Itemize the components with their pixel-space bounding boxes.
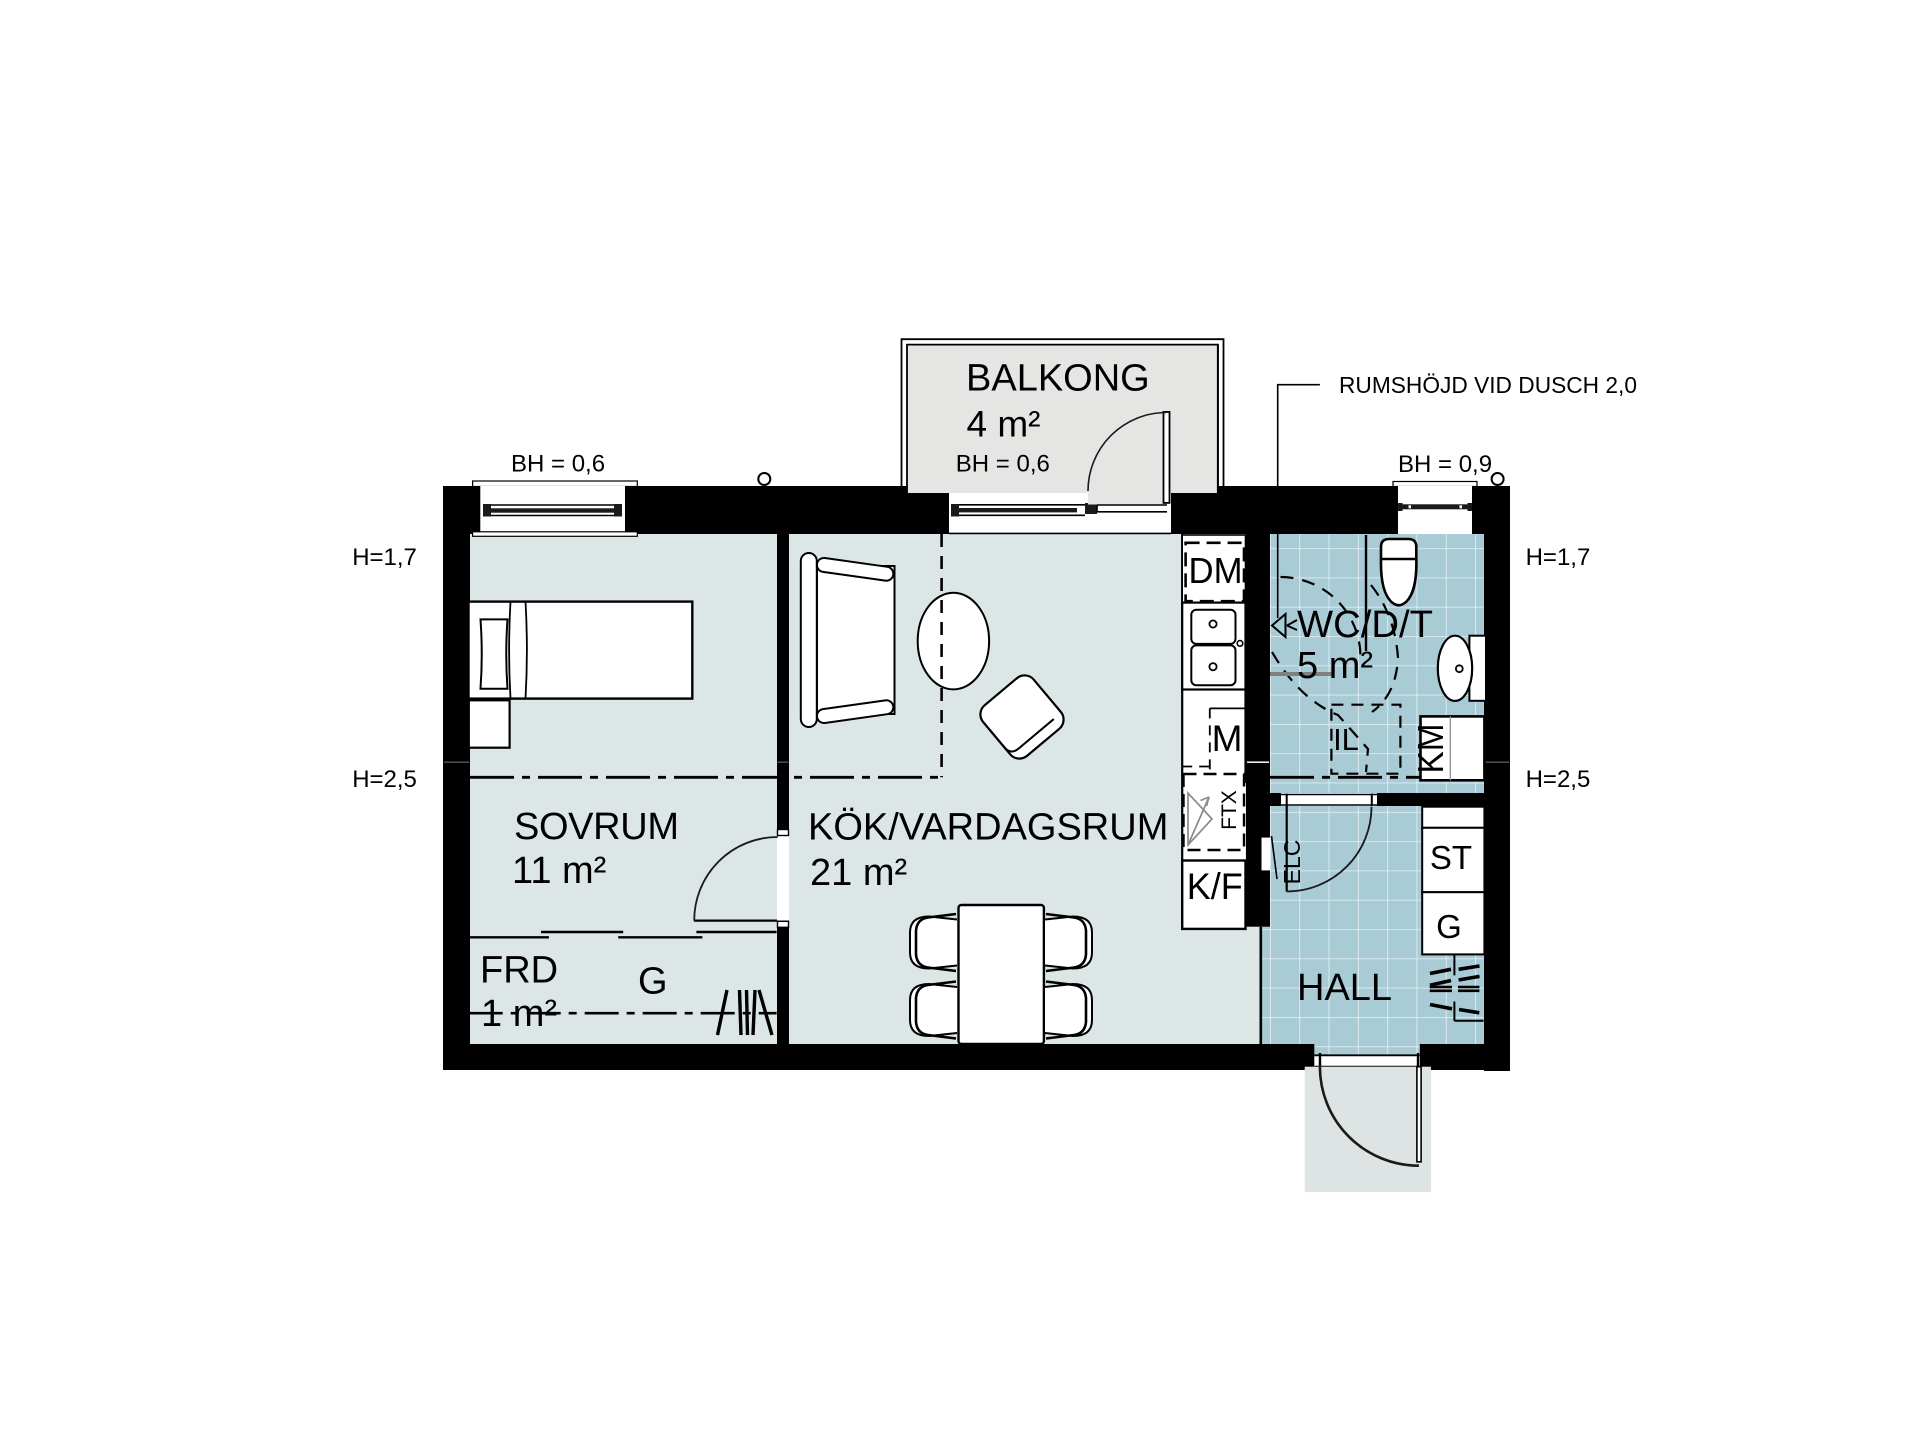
svg-text:5 m²: 5 m² — [1297, 645, 1373, 687]
svg-text:RUMSHÖJD VID DUSCH 2,0: RUMSHÖJD VID DUSCH 2,0 — [1339, 372, 1637, 398]
svg-text:H=1,7: H=1,7 — [1526, 544, 1591, 571]
svg-text:11 m²: 11 m² — [512, 850, 606, 892]
svg-text:FRD: FRD — [480, 950, 558, 992]
svg-text:1 m²: 1 m² — [481, 993, 557, 1035]
svg-text:BALKONG: BALKONG — [966, 358, 1150, 400]
svg-text:BH = 0,6: BH = 0,6 — [511, 451, 605, 478]
svg-text:H=1,7: H=1,7 — [352, 544, 417, 571]
svg-text:K/F: K/F — [1187, 866, 1243, 907]
svg-text:BH = 0,6: BH = 0,6 — [956, 451, 1050, 478]
svg-text:4 m²: 4 m² — [967, 403, 1041, 444]
svg-text:ELC: ELC — [1279, 840, 1305, 885]
svg-text:KÖK/VARDAGSRUM: KÖK/VARDAGSRUM — [808, 807, 1168, 849]
svg-text:DM: DM — [1189, 550, 1243, 591]
svg-text:HALL: HALL — [1297, 967, 1392, 1009]
svg-text:WC/D/T: WC/D/T — [1297, 604, 1433, 646]
svg-text:IL: IL — [1333, 722, 1359, 757]
svg-text:BH = 0,9: BH = 0,9 — [1398, 451, 1492, 478]
svg-text:G: G — [1436, 908, 1462, 945]
svg-text:FTX: FTX — [1218, 790, 1241, 830]
svg-text:21 m²: 21 m² — [810, 852, 907, 894]
svg-text:H=2,5: H=2,5 — [352, 766, 417, 793]
svg-text:M: M — [1212, 718, 1243, 759]
svg-text:H=2,5: H=2,5 — [1526, 766, 1591, 793]
svg-text:KM: KM — [1410, 724, 1451, 774]
svg-text:SOVRUM: SOVRUM — [514, 806, 679, 848]
svg-text:G: G — [638, 960, 668, 1002]
svg-text:ST: ST — [1430, 839, 1472, 876]
